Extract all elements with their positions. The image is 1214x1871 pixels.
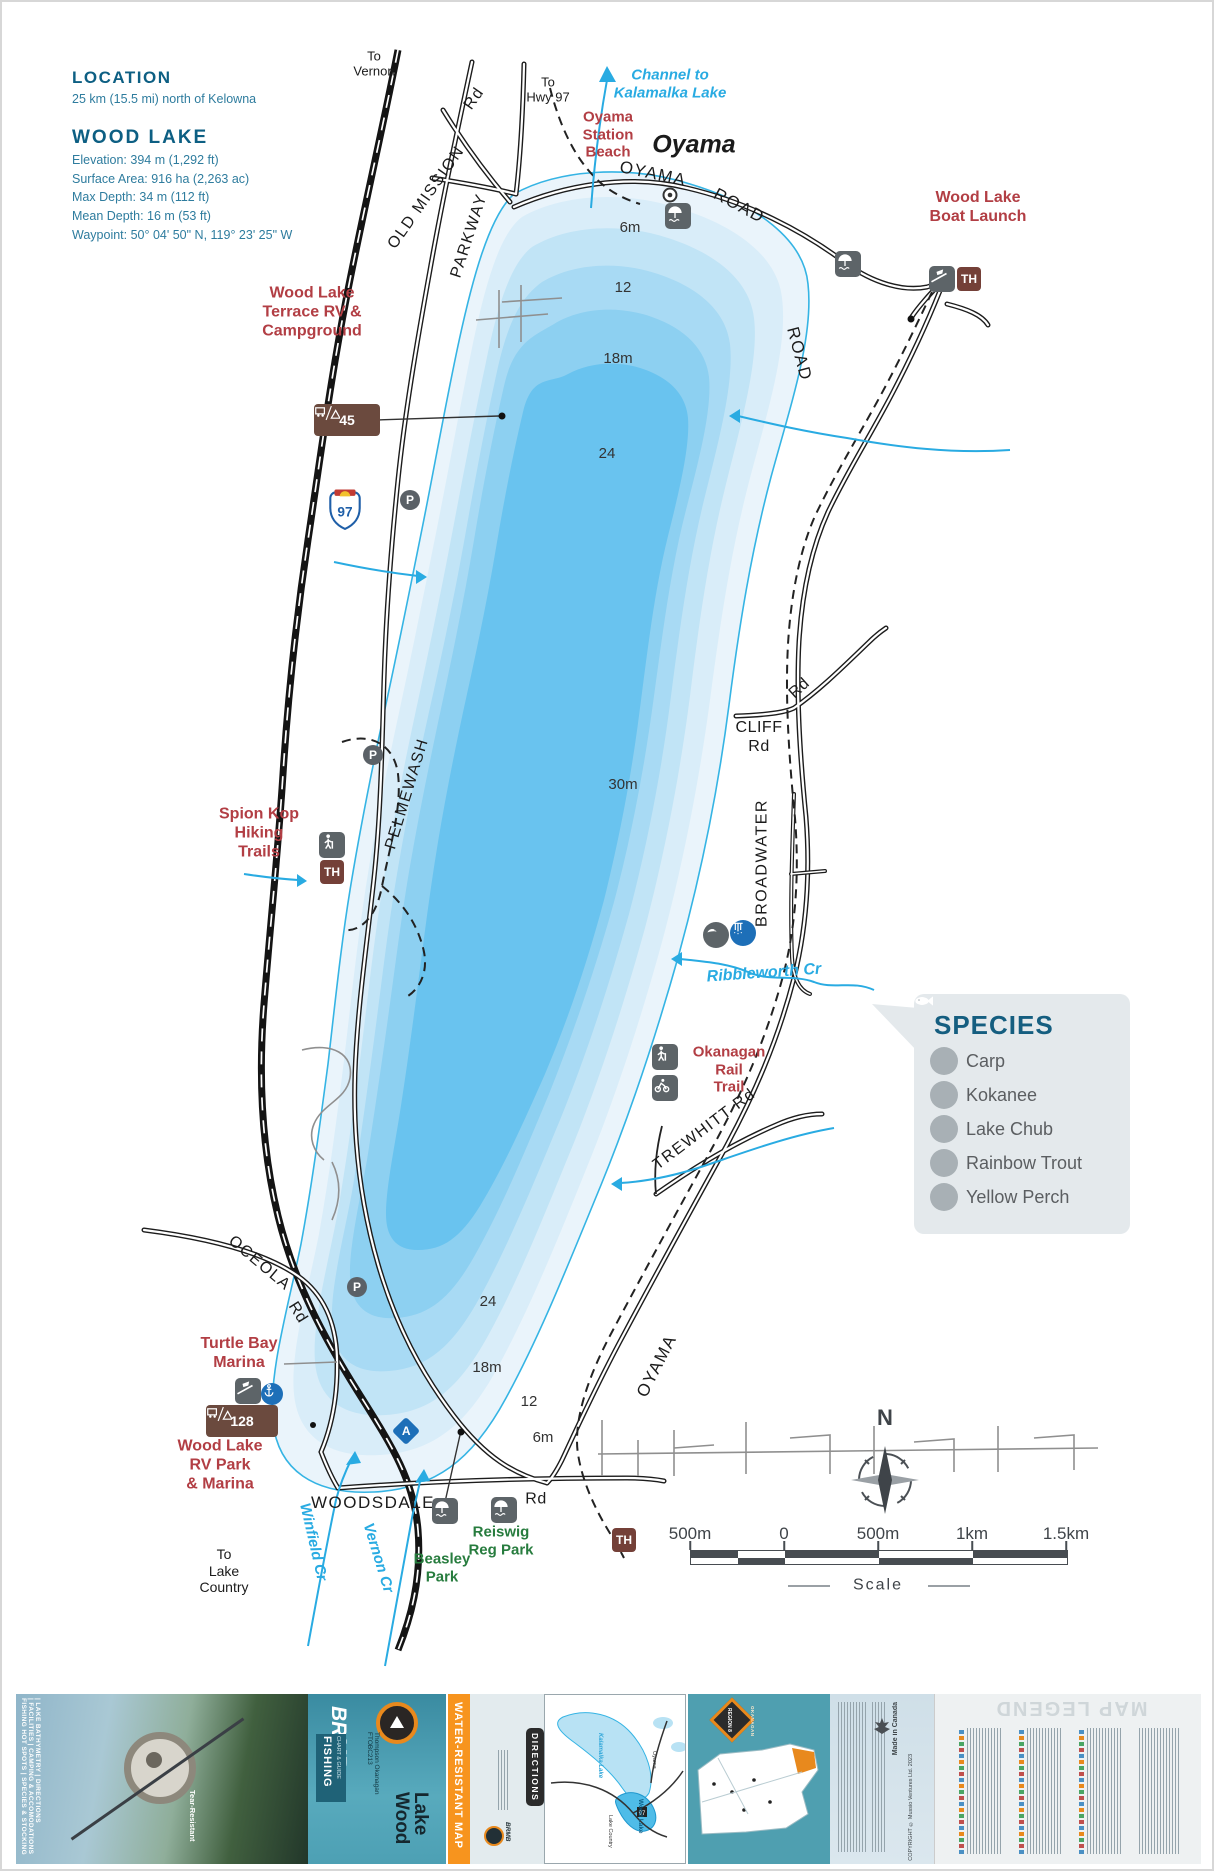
disclaimer-text-lines <box>838 1702 868 1852</box>
species-row: Kokanee <box>930 1081 1130 1109</box>
inset-wood-lake-label: Wood Lake <box>637 1799 644 1834</box>
species-name: Carp <box>966 1051 1005 1072</box>
legend-text-column <box>1139 1728 1179 1854</box>
to-lake-country-label: To Lake Country <box>199 1546 248 1596</box>
location-heading: LOCATION <box>72 68 372 88</box>
campground-sign-45: 45 <box>314 404 380 436</box>
beach-icon <box>491 1497 517 1523</box>
directions-tab: DIRECTIONS <box>526 1728 544 1806</box>
legend-text-column <box>1027 1728 1061 1854</box>
compass-rose <box>840 1435 930 1525</box>
hiker-icon <box>319 832 345 858</box>
scale-caption: Scale <box>853 1577 903 1596</box>
trailhead-sign: TH <box>320 860 344 884</box>
stat-elevation: Elevation: 394 m (1,292 ft) <box>72 151 372 170</box>
rv-park-label: Wood Lake RV Park & Marina <box>177 1438 262 1495</box>
cover-map-title: Wood Lake <box>392 1792 430 1844</box>
fishing-chart-guide-band: FISHING CHART & GUIDE <box>316 1734 346 1802</box>
map-legend-title: MAP LEGEND <box>951 1696 1191 1719</box>
depth-24-south: 24 <box>480 1293 497 1311</box>
copyright-label: COPYRIGHT © Mussio Ventures Ltd. 2023 <box>908 1754 914 1861</box>
parking-icon: P <box>347 1277 367 1297</box>
woodsdale-rd-label: Rd <box>525 1491 546 1510</box>
legend-text-column <box>967 1728 1001 1854</box>
trailhead-sign: TH <box>612 1528 636 1552</box>
legend-text-column <box>1087 1728 1121 1854</box>
species-name: Rainbow Trout <box>966 1153 1082 1174</box>
backroad-mapbooks-badge <box>376 1702 418 1744</box>
broadwater-label: BROADWATER <box>754 799 773 927</box>
stat-mean-depth: Mean Depth: 16 m (53 ft) <box>72 207 372 226</box>
cover-tagline: FISHING HOT SPOTS | SPECIES & STOCKING |… <box>20 1698 41 1858</box>
species-name: Yellow Perch <box>966 1187 1069 1208</box>
legend-icon-column <box>959 1728 964 1854</box>
made-in-canada-label: Made in Canada <box>892 1702 899 1755</box>
terrace-rv-label: Wood Lake Terrace RV & Campground <box>262 285 362 342</box>
footer-photo-panel: FISHING HOT SPOTS | SPECIES & STOCKING |… <box>16 1694 308 1864</box>
scale-bar <box>690 1550 1068 1565</box>
beach-icon <box>432 1498 458 1524</box>
to-hwy97-label: To Hwy 97 <box>526 75 569 106</box>
boat-launch-icon <box>235 1378 261 1404</box>
reiswig-park-label: Reiswig Reg Park <box>468 1523 533 1558</box>
lake-heading: WOOD LAKE <box>72 127 372 149</box>
campground-sign-number: 128 <box>230 1413 253 1429</box>
species-row: Lake Chub <box>930 1115 1130 1143</box>
compass-north-label: N <box>877 1405 893 1431</box>
footer-region-panel: REGION 8 OKANAGAN <box>688 1694 830 1864</box>
turtle-bay-label: Turtle Bay Marina <box>200 1335 277 1373</box>
parking-icon: P <box>363 745 383 765</box>
region-8-label: REGION 8 <box>726 1708 732 1732</box>
depth-6m-north: 6m <box>620 219 641 237</box>
beach-icon <box>665 203 691 229</box>
fish-icon <box>930 1047 958 1075</box>
location-text: 25 km (15.5 mi) north of Kelowna <box>72 90 372 109</box>
parking-icon: P <box>400 490 420 510</box>
species-box: SPECIES Carp Kokanee Lake Chub Rainbow T… <box>914 994 1130 1234</box>
to-vernon-label: To Vernon <box>353 49 394 80</box>
fish-icon <box>930 1183 958 1211</box>
footer-inset-map-panel: 97 Kalamalka Lake Wood Lake Oyama Lake C… <box>544 1694 686 1864</box>
okanagan-rail-trail-label: Okanagan Rail Trail <box>693 1043 766 1096</box>
campground-sign-number: 45 <box>339 412 355 428</box>
species-name: Kokanee <box>966 1085 1037 1106</box>
footer-legend-panel: MAP LEGEND <box>934 1694 1201 1864</box>
inset-kalamalka-label: Kalamalka Lake <box>597 1733 603 1778</box>
inset-oyama-label: Oyama <box>651 1751 657 1769</box>
maple-leaf-icon <box>874 1718 890 1734</box>
legend-icon-column <box>1079 1728 1084 1854</box>
svg-text:97: 97 <box>337 504 352 519</box>
brmb-mini-badge <box>484 1826 504 1846</box>
cyclist-icon <box>652 1075 678 1101</box>
boat-launch-icon <box>929 266 955 292</box>
species-title: SPECIES <box>934 1010 1130 1041</box>
depth-12-north: 12 <box>615 279 632 297</box>
beasley-park-label: Beasley Park <box>414 1550 471 1585</box>
fish-icon <box>930 1081 958 1109</box>
species-row: Rainbow Trout <box>930 1149 1130 1177</box>
region-name-label: OKANAGAN <box>750 1706 755 1737</box>
junction-circle <box>664 189 677 202</box>
scale-dash-left <box>788 1585 830 1587</box>
address-text-lines <box>498 1750 508 1810</box>
cliff-rd-label: CLIFF Rd <box>736 719 783 757</box>
oyama-town-label: Oyama <box>652 130 735 160</box>
brmb-mini-wordmark: BRMB <box>504 1822 511 1842</box>
depth-24-north: 24 <box>599 445 616 463</box>
water-resistant-label: WATER-RESISTANT MAP <box>452 1702 464 1849</box>
species-row: Carp <box>930 1047 1130 1075</box>
fish-icon <box>930 1115 958 1143</box>
inset-lake-country-label: Lake Country <box>607 1815 613 1848</box>
legend-icon-column <box>1019 1728 1024 1854</box>
footer-brand-panel: BRMB FISHING CHART & GUIDE Thompson Okan… <box>308 1694 446 1864</box>
anchor-icon <box>261 1383 283 1405</box>
channel-label: Channel to Kalamalka Lake <box>614 66 727 101</box>
stat-waypoint: Waypoint: 50° 04' 50" N, 119° 23' 25" W <box>72 226 372 245</box>
directions-label: DIRECTIONS <box>530 1733 540 1801</box>
spion-kop-label: Spion Kop Hiking Trails <box>219 806 299 863</box>
hiker-icon <box>652 1044 678 1070</box>
trailhead-sign: TH <box>957 267 981 291</box>
species-name: Lake Chub <box>966 1119 1053 1140</box>
species-row: Yellow Perch <box>930 1183 1130 1211</box>
oyama-station-beach-label: Oyama Station Beach <box>583 108 634 161</box>
depth-12-south: 12 <box>521 1393 538 1411</box>
tear-resistant-label: Tear-Resistant <box>188 1790 197 1842</box>
inset-map: 97 <box>545 1695 685 1863</box>
waterfall-icon <box>730 920 756 946</box>
depth-18m-south: 18m <box>472 1359 501 1377</box>
campground-sign-128: 128 <box>206 1405 278 1437</box>
boat-launch-label: Wood Lake Boat Launch <box>930 189 1027 227</box>
depth-30m: 30m <box>608 776 637 794</box>
wildlife-viewing-icon <box>703 922 729 948</box>
beach-icon <box>835 251 861 277</box>
fishing-band-title: FISHING <box>321 1736 333 1800</box>
woodsdale-label: WOODSDALE <box>311 1493 435 1513</box>
fish-icon <box>930 1149 958 1177</box>
scale-dash-right <box>928 1585 970 1587</box>
info-panel: LOCATION 25 km (15.5 mi) north of Kelown… <box>72 68 372 245</box>
anchorage-letter: A <box>402 1424 411 1438</box>
chart-guide-band-sub: CHART & GUIDE <box>335 1736 341 1800</box>
map-page: LOCATION 25 km (15.5 mi) north of Kelown… <box>0 0 1214 1871</box>
footer-disclaimer-panel: Made in Canada COPYRIGHT © Mussio Ventur… <box>830 1694 934 1864</box>
stat-surface-area: Surface Area: 916 ha (2,263 ac) <box>72 170 372 189</box>
anchorage-icon: A <box>396 1421 416 1441</box>
footer-directions-panel: DIRECTIONS BRMB <box>470 1694 544 1864</box>
depth-18m-north: 18m <box>603 350 632 368</box>
stat-max-depth: Max Depth: 34 m (112 ft) <box>72 188 372 207</box>
footer-water-resistant-strip: WATER-RESISTANT MAP <box>448 1694 470 1864</box>
map-canvas <box>2 2 1214 1682</box>
series-label: Thompson Okanagan FTOBC213 <box>366 1732 380 1812</box>
depth-6m-south: 6m <box>533 1429 554 1447</box>
